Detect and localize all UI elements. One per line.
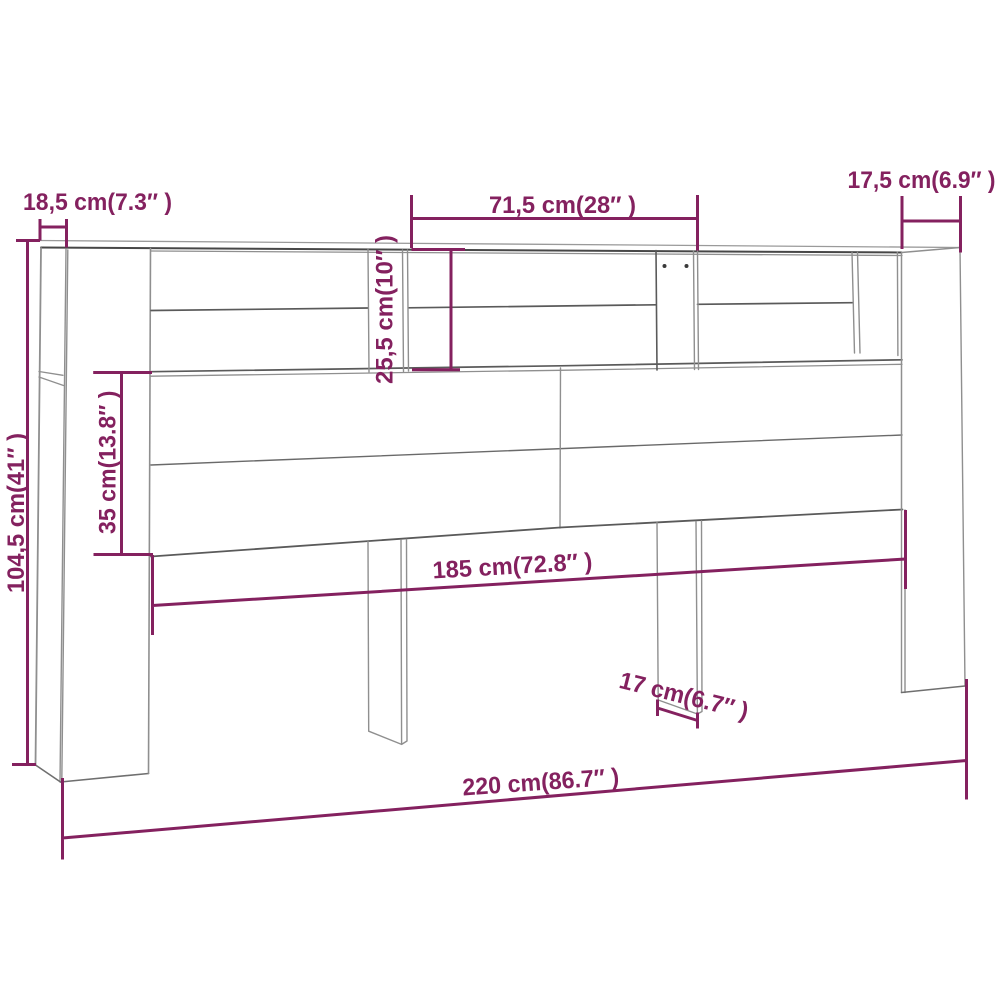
svg-text:104,5 cm(41″ ): 104,5 cm(41″ ) (3, 433, 30, 593)
svg-text:25,5 cm(10″ ): 25,5 cm(10″ ) (372, 235, 399, 384)
svg-text:71,5 cm(28″ ): 71,5 cm(28″ ) (489, 192, 636, 219)
svg-text:35 cm(13.8″ ): 35 cm(13.8″ ) (95, 391, 122, 535)
svg-text:17,5 cm(6.9″ ): 17,5 cm(6.9″ ) (848, 167, 996, 194)
svg-text:18,5 cm(7.3″ ): 18,5 cm(7.3″ ) (23, 189, 172, 216)
